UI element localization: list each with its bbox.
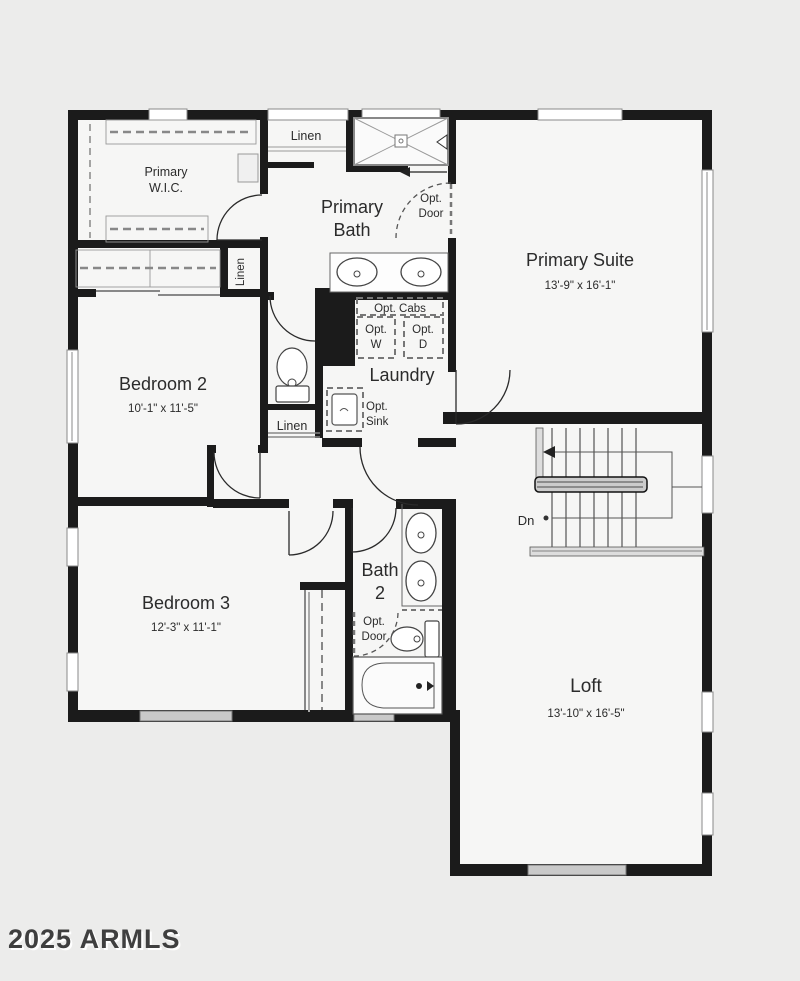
wall-laundry-bottom-right bbox=[418, 438, 456, 447]
bath2-toilet-hinge bbox=[414, 636, 420, 642]
floor-plan-drawing: Linen Primary W.I.C. Primary Bath Opt. D… bbox=[0, 0, 800, 981]
linen-hall-label: Linen bbox=[277, 419, 308, 433]
wall-bath-suite-upper bbox=[448, 110, 456, 184]
opt-door-bath2-label-line1: Opt. bbox=[363, 616, 385, 628]
primary-suite-dims: 13'-9" x 16'-1" bbox=[545, 280, 616, 292]
wall-wc-bottom bbox=[262, 404, 322, 410]
bath2-toilet-tank bbox=[425, 621, 439, 657]
loft-dims: 13'-10" x 16'-5" bbox=[547, 708, 624, 720]
stair-direction-dot bbox=[544, 516, 549, 521]
wall-linen-upper-bottom bbox=[262, 162, 314, 168]
wall-bedroom3-top-left bbox=[213, 499, 289, 508]
stair-left-stringer bbox=[536, 428, 543, 478]
opt-door-primary-label-line2: Door bbox=[419, 208, 444, 220]
opt-dryer-label-line1: Opt. bbox=[412, 324, 434, 336]
bath2-sink-top bbox=[406, 513, 436, 553]
primary-bath-vanity bbox=[330, 253, 448, 292]
wall-closet2-stub-left bbox=[68, 289, 96, 297]
stairs-down-label: Dn bbox=[518, 513, 535, 528]
wall-suite-bottom bbox=[443, 412, 712, 424]
shower bbox=[354, 118, 448, 165]
bedroom2-label: Bedroom 2 bbox=[119, 374, 207, 394]
toilet-tank bbox=[276, 386, 309, 402]
opt-sink-basin bbox=[332, 394, 357, 425]
wall-wic-bottom bbox=[68, 240, 268, 248]
wall-wic-right-upper bbox=[260, 110, 268, 194]
bath2-label-line2: 2 bbox=[375, 583, 385, 603]
laundry-label: Laundry bbox=[369, 365, 434, 385]
opt-cabs-label: Opt. Cabs bbox=[374, 303, 426, 315]
bedroom2-dims: 10'-1" x 11'-5" bbox=[128, 403, 198, 415]
wall-laundry-bottom-left bbox=[322, 438, 362, 447]
wall-wc-right bbox=[315, 364, 323, 438]
window-right-loft-a bbox=[702, 692, 713, 732]
stair-handrail bbox=[535, 477, 647, 492]
watermark: 2025 ARMLS 2025 ARMLS bbox=[8, 924, 183, 956]
window-left-bedroom3-b bbox=[67, 653, 78, 691]
primary-bath-label-line1: Primary bbox=[321, 197, 383, 217]
opt-washer-label-line1: Opt. bbox=[365, 324, 387, 336]
window-top-wic bbox=[149, 109, 187, 120]
bathtub bbox=[353, 657, 442, 714]
bedroom3-label: Bedroom 3 bbox=[142, 593, 230, 613]
window-bottom-bedroom3 bbox=[140, 711, 232, 721]
window-top-suite bbox=[538, 109, 622, 120]
opt-washer-label-line2: W bbox=[371, 339, 382, 351]
opt-dryer-label-line2: D bbox=[419, 339, 427, 351]
window-right-stairs bbox=[702, 456, 713, 513]
primary-wic-label-line2: W.I.C. bbox=[149, 181, 183, 195]
wall-closet3-top bbox=[300, 582, 352, 590]
primary-wic-label-line1: Primary bbox=[144, 165, 188, 179]
bath2-label-line1: Bath bbox=[361, 560, 398, 580]
bath2-sink-bottom bbox=[406, 561, 436, 601]
wall-wc-top-stub bbox=[262, 292, 274, 300]
opt-sink-label-line2: Sink bbox=[366, 416, 389, 428]
wic-shelf-box bbox=[238, 154, 258, 182]
window-bottom-loft bbox=[528, 865, 626, 875]
primary-suite-label: Primary Suite bbox=[526, 250, 634, 270]
linen-bedroom2-label: Linen bbox=[235, 258, 247, 286]
tub-drain bbox=[416, 683, 422, 689]
shower-drain-box bbox=[395, 135, 407, 147]
primary-toilet bbox=[276, 348, 309, 402]
opt-door-primary-label-line1: Opt. bbox=[420, 193, 442, 205]
wall-loft-left bbox=[450, 710, 460, 876]
wall-bath-suite-mid bbox=[448, 238, 456, 372]
sink-basin-left bbox=[337, 258, 377, 286]
wall-bath2-right bbox=[442, 499, 456, 712]
loft-label: Loft bbox=[570, 676, 602, 697]
stair-bottom-rail bbox=[530, 547, 704, 556]
wall-linen2-left bbox=[220, 248, 228, 297]
wall-wic-right-stub bbox=[260, 237, 268, 248]
window-left-bedroom3-a bbox=[67, 528, 78, 566]
wall-bedroom2-door-jamb-right bbox=[258, 445, 268, 453]
linen-upper-label: Linen bbox=[291, 129, 322, 143]
window-right-loft-b bbox=[702, 793, 713, 835]
bedroom3-dims: 12'-3" x 11'-1" bbox=[151, 622, 221, 634]
wall-bedroom2-right bbox=[260, 248, 268, 445]
wall-bedroom23-divider bbox=[68, 497, 213, 506]
floor-plan-page: Linen Primary W.I.C. Primary Bath Opt. D… bbox=[0, 0, 800, 981]
sink-basin-right bbox=[401, 258, 441, 286]
opt-door-bath2-label-line2: Door bbox=[362, 631, 387, 643]
wall-chase bbox=[315, 288, 355, 366]
primary-bath-label-line2: Bath bbox=[333, 220, 370, 240]
opt-sink-label-line1: Opt. bbox=[366, 401, 388, 413]
window-top-bath bbox=[268, 109, 348, 120]
watermark-text: 2025 ARMLS bbox=[8, 924, 181, 954]
